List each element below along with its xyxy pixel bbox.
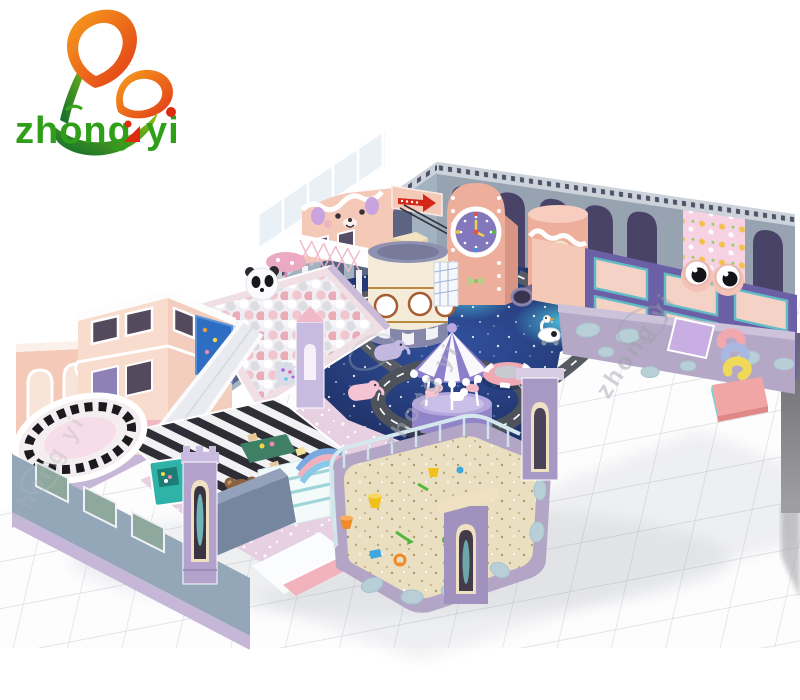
playground-render-page: zhong yi zhong yi zhong yi zhong yi (0, 0, 800, 700)
logo-i-dot (166, 107, 176, 117)
castle-gate (181, 446, 219, 584)
bear-ear (311, 207, 325, 225)
disco-ball (275, 362, 299, 386)
brand-logo: zhong yi (15, 10, 180, 156)
window (92, 316, 118, 344)
castle-turret (296, 306, 324, 408)
logo-word-yi: yi (146, 110, 180, 152)
toddler-ramp (668, 318, 714, 358)
logo-word-zhong: zhong (15, 110, 132, 152)
window (126, 308, 152, 336)
window (126, 360, 152, 396)
porthole (409, 293, 431, 315)
panda-face-decor (245, 266, 279, 300)
playground-render: zhong yi zhong yi zhong yi zhong yi (0, 0, 800, 700)
climbing-lattice (434, 262, 458, 306)
bear-ear (365, 197, 379, 215)
bear-eye (359, 209, 365, 215)
bear-eye (335, 213, 341, 219)
side-gate-pillar (516, 368, 564, 480)
